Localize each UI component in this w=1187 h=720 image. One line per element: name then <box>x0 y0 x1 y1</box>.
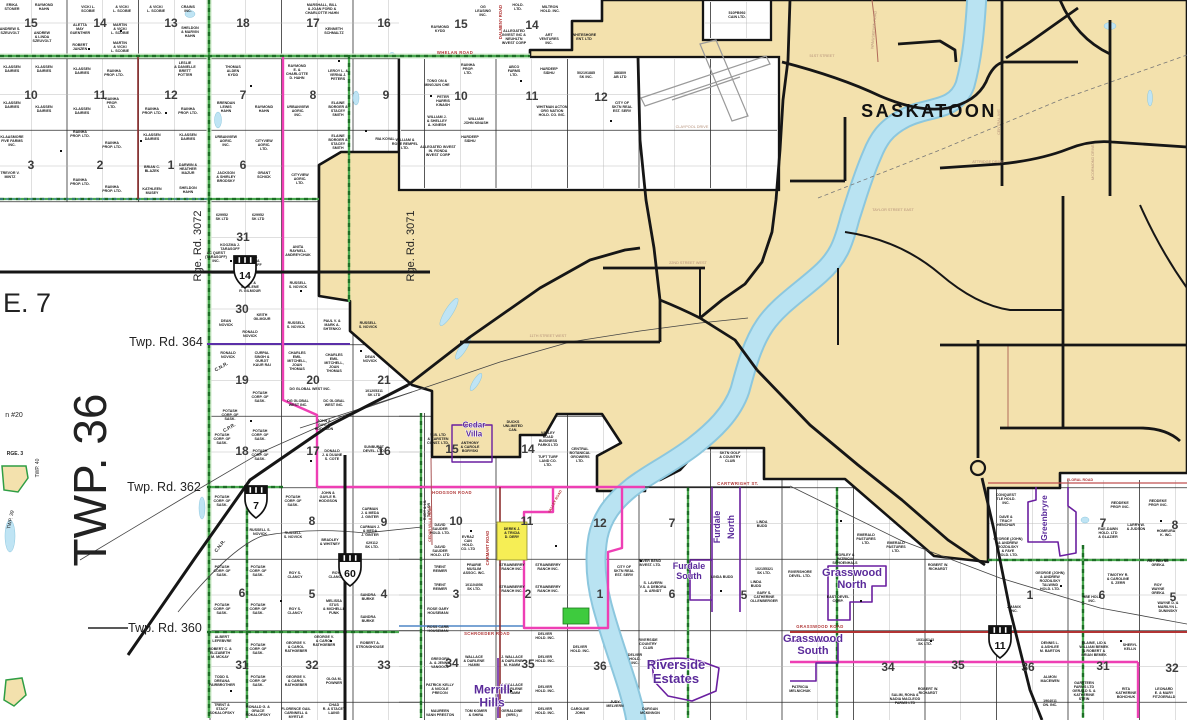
wheat-icon <box>250 487 252 493</box>
wheat-icon <box>255 487 257 493</box>
parcel-owner-label: DELVERHOLD. INC. <box>570 645 589 653</box>
shield-number: 14 <box>239 270 251 282</box>
section-number: 6 <box>240 158 247 172</box>
section-number: 15 <box>24 16 38 30</box>
parcel-owner-label: JACKSON& SHIRLEYBRODSKY <box>216 171 236 183</box>
building-dot <box>280 600 282 602</box>
section-number: 14 <box>521 442 535 456</box>
saskatoon-area-map: ERIKASTONERRAYMONDHAHNVICKI L.SCOBIE& VI… <box>0 0 1187 720</box>
lake <box>215 112 222 128</box>
section-number: 20 <box>306 373 320 387</box>
parcel-owner-label: ROBERT C. &ELIZABETHM. MCKAY <box>208 647 232 659</box>
building-dot <box>840 520 842 522</box>
wheat-icon <box>244 257 246 263</box>
parcel-owner-label: 502191885SK INC. <box>577 71 595 79</box>
parcel-owner-label: ELAINE, LID &WILLIAM BEMEK& ROBERT &BRIA… <box>1079 641 1109 657</box>
section-number: 10 <box>454 89 468 103</box>
lake <box>353 91 359 105</box>
parcel-owner-label: KLASSENDAIRIES <box>35 105 53 113</box>
section-number: 18 <box>236 16 250 30</box>
parcel-owner-label: KLASSENDAIRIES <box>35 65 53 73</box>
section-number: 7 <box>669 516 676 530</box>
section-number: 2 <box>97 158 104 172</box>
lake <box>1081 517 1089 523</box>
map-text-label: 22ND STREET WEST <box>669 261 707 265</box>
parcel-owner-label: VICKI L.SCOBIE <box>81 5 95 13</box>
section-number: 5 <box>309 587 316 601</box>
parcel-owner-label: KENNETHSCHMALTZ <box>324 27 344 35</box>
map-text-label: CENTRAL AVE <box>997 109 1001 135</box>
parcel-owner-label: REDDEKEPROP. INC. <box>1149 499 1168 507</box>
map-text-label: TWP. 40 <box>35 458 41 477</box>
map-text-label: Greenbryre <box>1039 495 1049 541</box>
map-text-label: RiversideEstates <box>647 657 706 686</box>
parcel-owner-label: STRAWBERRYRANCH INC. <box>499 563 525 571</box>
parcel-owner-label: CHARLESEMILMITCHELL,JOANTHOMAS <box>287 351 306 371</box>
section-number: 35 <box>951 658 965 672</box>
map-text-label: CARTWRIGHT ST. <box>717 481 758 486</box>
building-dot <box>140 140 142 142</box>
parcel-owner-label: 510PB992CAIN LTD. <box>728 11 746 19</box>
section-number: 34 <box>445 656 459 670</box>
section-number: 31 <box>236 230 250 244</box>
parcel-owner-label: 101104056SK LTD. <box>465 583 483 591</box>
parcel-owner-label: LINDABUDD <box>751 580 762 588</box>
lake <box>199 497 205 519</box>
parcel-owner-label: KLASSENDAIRIES <box>3 101 21 109</box>
parcel-owner-label: RUSSELLS. NOVICK <box>289 281 308 289</box>
parcel-owner-label: BRIAN C.BLAZEK <box>144 165 160 173</box>
building-dot <box>1060 585 1062 587</box>
section-number: 16 <box>377 444 391 458</box>
section-number: 1 <box>1027 588 1034 602</box>
rural-enclave-block <box>703 0 771 40</box>
map-text-label: WHELAN ROAD <box>437 50 473 55</box>
section-number: 31 <box>235 658 249 672</box>
wheat-icon <box>239 257 241 263</box>
section-number: 36 <box>1021 660 1035 674</box>
section-number: 6 <box>239 586 246 600</box>
section-number: 32 <box>305 658 319 672</box>
section-number: 7 <box>240 88 247 102</box>
parcel-owner-label: PAUL V. &MARK A.SHTENKO <box>323 319 341 331</box>
map-text-label: MerrillHills <box>474 683 510 710</box>
wheat-icon <box>999 627 1001 633</box>
section-number: 7 <box>1100 516 1107 530</box>
section-number: 21 <box>377 373 391 387</box>
map-text-label: Twp. Rd. 364 <box>129 335 203 349</box>
section-number: 5 <box>741 588 748 602</box>
section-number: 11 <box>94 88 107 102</box>
parcel-owner-label: CARMAN J.& MEDAJ. GINTER <box>360 525 380 537</box>
section-number: 9 <box>383 88 390 102</box>
section-number: 35 <box>521 657 535 671</box>
parcel-owner-label: ROY S.CLANCY <box>288 571 304 579</box>
parcel-owner-label: OLGA M.POWNER <box>326 677 343 685</box>
map-text-label: SCHROEDER ROAD <box>464 631 510 636</box>
section-number: 16 <box>377 16 391 30</box>
parcel-owner-label: CURPALSINGH &GURJITKAUR RAI <box>253 351 271 367</box>
parcel-owner-label: TONG ON &MINGJUN CHE <box>424 79 450 87</box>
parcel-owner-label: CARMANJ. & MEDAJ. GINTER <box>361 507 380 519</box>
map-text-label: CedarVilla <box>463 421 486 439</box>
section-number: 2 <box>525 587 532 601</box>
section-number: 15 <box>454 17 468 31</box>
parcel-owner-label: 386809AB LTD <box>614 71 627 79</box>
map-text-label: ATTRIDGE DRIVE <box>972 160 1004 164</box>
parcel-owner-label: PETERHARRISKINASH <box>436 95 450 107</box>
wheat-icon <box>1005 627 1007 633</box>
parcel-owner-label: KOOZMA J.TARASOFF <box>220 243 240 251</box>
section-number: 5 <box>1170 590 1177 604</box>
parcel-owner-label: RAINHAPROP. LTD. <box>142 107 161 115</box>
building-dot <box>365 130 367 132</box>
parcel-owner-label: 629112SK LTD. <box>365 541 379 549</box>
section-number: 6 <box>669 587 676 601</box>
parcel-owner-label: RAINHAPROP. LTD. <box>70 130 89 138</box>
parcel-owner-label: LEONARDE. & MARYFITZGERALD <box>1153 687 1176 699</box>
section-number: 11 <box>526 89 539 103</box>
parcel-owner-label: ROSS CARBHOUSEMAN <box>427 625 449 633</box>
section-number: 32 <box>1165 661 1179 675</box>
section-number: 4 <box>381 587 388 601</box>
parcel-owner-label: WILLIAM J.& SHELLEYA. KINESH <box>427 115 448 127</box>
section-number: 17 <box>306 16 320 30</box>
parcel-owner-label: MILTRONHOLD. INC. <box>540 5 559 13</box>
shield-number: 11 <box>994 640 1005 652</box>
parcel-owner-label: SANDRABURKE <box>360 593 376 601</box>
section-number: 10 <box>449 514 463 528</box>
parcel-owner-label: DELVERHOLD. INC. <box>535 685 554 693</box>
map-text-label: TAYLOR STREET EAST <box>872 208 914 212</box>
map-text-label: 51ST STREET <box>809 54 835 58</box>
parcel-owner-label: 101205311SK LTD <box>365 389 383 397</box>
wheat-icon <box>994 627 996 633</box>
building-dot <box>470 530 472 532</box>
building-dot <box>165 112 167 114</box>
parcel-owner-label: RAINHAPROP. LTD. <box>102 141 121 149</box>
map-text-label: RGE. 3 <box>7 451 24 457</box>
section-number: 15 <box>445 442 459 456</box>
parcel-owner-label: RAINHAPROP. LTD. <box>104 69 123 77</box>
parcel-owner-label: RIVER BENDINVEST. LTD. <box>639 559 662 567</box>
parcel-owner-label: KLASSENDAIRIES <box>3 65 21 73</box>
map-text-label: Twp. Rd. 360 <box>128 621 202 635</box>
parcel-owner-label: BRADLEY& WHITNEY <box>320 538 341 546</box>
parcel-owner-label: DENNIS L.& ASHLEEM. BARTON <box>1040 641 1061 653</box>
shield-number: 7 <box>253 500 259 512</box>
section-number: 11 <box>521 514 534 528</box>
parcel-owner-label: ANDREW S.SZEUVOLT <box>0 27 20 35</box>
parcel-owner-label: WHITMAN ACTONORG NATIONHOLD. CO. INC. <box>537 105 568 117</box>
parcel-owner-label: RUSSELLS. NOVICK <box>287 321 306 329</box>
parcel-owner-label: ROSE GARYHOUSEMAN <box>427 607 449 615</box>
parcel-owner-label: 629952SK LTD <box>216 213 229 221</box>
shield-number: 60 <box>344 568 356 580</box>
parcel-owner-label: 103146143SK LTD. <box>916 638 934 646</box>
building-dot <box>230 690 232 692</box>
map-text-label: MCORMOND DRIVE <box>1091 144 1095 180</box>
section-number: 17 <box>306 444 320 458</box>
wheat-icon <box>344 555 346 561</box>
parcel-owner-label: ALLEGATEDINVEST INC &NEUHLTNINVEST CORP <box>502 29 527 45</box>
building-dot <box>1160 520 1162 522</box>
map-text-label: DALMENY ROAD <box>498 5 503 39</box>
map-text-label: HODGSON ROAD <box>432 490 472 495</box>
parcel-owner-label: ROBERT W.RICHARDT <box>918 687 938 695</box>
building-dot <box>310 460 312 462</box>
section-number: 10 <box>24 88 38 102</box>
parcel-owner-label: PATRICIAMELNICHUK <box>789 685 811 693</box>
building-dot <box>860 600 862 602</box>
parcel-owner-label: STRAWBERRYRANCH INC. <box>535 563 561 571</box>
parcel-owner-label: DURGANMCKINNON <box>640 707 660 715</box>
wheat-icon <box>355 555 357 561</box>
parcel-owner-label: DEREK J.& TRICIAD. DERY <box>504 527 521 539</box>
map-text-label: CEDAR VILLA ROAD <box>428 506 432 542</box>
section-number: 31 <box>1096 659 1110 673</box>
parcel-owner-label: ANTHONY& CAROLEBORYSKI <box>461 441 480 453</box>
parcel-owner-label: RONALDNOVICK <box>220 351 236 359</box>
lake <box>1148 90 1153 106</box>
parcel-owner-label: DC GLOBALWEST INC. <box>323 399 345 407</box>
parcel-owner-label: DELVERHOLD. INC. <box>535 632 554 640</box>
parcel-owner-label: MARSHALL, BILL& JOAN FORD &CHARLOTTE HAH… <box>305 3 339 15</box>
parcel-owner-label: EVRAZCANHOLD.CO. LTD <box>461 535 476 551</box>
section-number: 18 <box>235 444 249 458</box>
section-number: 12 <box>164 88 178 102</box>
parcel-owner-label: RIA KOVAL <box>375 137 395 141</box>
parcel-owner-label: STRAWBERRYRANCH INC. <box>499 585 525 593</box>
map-text-label: FLORAL ROAD <box>1067 478 1093 482</box>
map-text-label: FurdaleSouth <box>673 561 706 581</box>
section-number: 12 <box>594 90 608 104</box>
building-dot <box>60 150 62 152</box>
building-dot <box>250 420 252 422</box>
parcel-owner-label: TRENTREIMER <box>433 583 447 591</box>
parcel-owner-label: DG GLOBAL WEST INC. <box>289 387 330 391</box>
map-text-label: CARMART ROAD <box>485 531 490 566</box>
building-dot <box>360 350 362 352</box>
building-dot <box>230 260 232 262</box>
parcel-owner-label: RAINHAPROP. LTD. <box>70 178 89 186</box>
parcel-owner-label: RAINHAPROP. LTD. <box>102 185 121 193</box>
wheat-icon <box>349 555 351 561</box>
section-number: 9 <box>381 515 388 529</box>
map-text-label: Rge. Rd. 3072 <box>192 211 204 282</box>
section-number: 14 <box>525 18 539 32</box>
section-number: 36 <box>593 659 607 673</box>
building-dot <box>338 60 340 62</box>
building-dot <box>88 48 90 50</box>
section-number: 1 <box>168 158 175 172</box>
map-text-label: 11TH STREET WEST <box>530 334 568 338</box>
map-text-label: Rge. Rd. 3071 <box>405 211 417 282</box>
parcel-owner-label: 629952SK LTD <box>252 213 265 221</box>
parcel-owner-label: KLASSENDAIRIES <box>143 133 161 141</box>
building-dot <box>250 85 252 87</box>
map-text-label: E. 7 <box>3 288 51 318</box>
section-number: 30 <box>235 302 249 316</box>
map-text-label: n #20 <box>5 412 23 419</box>
section-number: 19 <box>235 373 249 387</box>
parcel-owner-label: ROBERTJANZEN <box>72 43 88 51</box>
section-number: 3 <box>453 587 460 601</box>
map-text-label: North <box>726 515 736 539</box>
building-dot <box>1120 640 1122 642</box>
parcel-owner-label: KLASSENDAIRIES <box>73 107 91 115</box>
parcel-owner-label: KLASSENDAIRIES <box>179 133 197 141</box>
section-number: 33 <box>377 658 391 672</box>
parcel-owner-label: RONALDNOVICK <box>242 330 258 338</box>
section-number: 8 <box>310 88 317 102</box>
building-dot <box>555 545 557 547</box>
parcel-owner-label: RUSSELLS. NOVICK <box>359 321 378 329</box>
wheat-icon <box>261 487 263 493</box>
parcel-owner-label: DELVERHOLD. INC. <box>535 707 554 715</box>
wheat-icon <box>250 257 252 263</box>
parcel-owner-label: ROBERT W.RICHARDT <box>928 563 948 571</box>
map-text-label: GRASSWOOD ROAD <box>796 624 843 629</box>
parcel-owner-label: REDDEKEPROP. INC. <box>1111 501 1130 509</box>
parcel-owner-label: CHARLESEMILMITCHELL,JOANTHOMAS <box>324 353 343 373</box>
parcel-owner-label: SHERYLKELLN <box>1123 643 1138 651</box>
section-number: 8 <box>309 514 316 528</box>
building-dot <box>610 120 612 122</box>
parcel-owner-label: LARRY W.& JUDSON <box>1127 523 1146 531</box>
map-text-label: TWP. 36 <box>64 394 116 567</box>
building-dot <box>520 80 522 82</box>
parcel-owner-label: ROY S.CLANCY <box>288 607 304 615</box>
parcel-owner-label: RIVERSHOREDEVEL. LTD. <box>788 570 812 578</box>
parcel-owner-label: TRENTREIMER <box>433 565 447 573</box>
parcel-owner-label: KLASSENDAIRIES <box>73 67 91 75</box>
section-number: 34 <box>881 660 895 674</box>
map-text-label: Furdale <box>712 511 722 544</box>
parcel-owner-label: ERIKASTONER <box>5 3 20 11</box>
parcel-owner-label: ALBERTLEFEBVRE <box>212 635 232 643</box>
map-text-label: CLAYPOOL DRIVE <box>676 125 709 129</box>
section-number: 3 <box>28 158 35 172</box>
map-text-label: SASKATOON <box>861 101 997 121</box>
parcel-owner-label: RUSSELLS. NOVICK <box>284 531 303 539</box>
section-number: 14 <box>93 16 107 30</box>
parcel-owner-label: ANDREW& LINDASZEUVOLT <box>33 31 53 43</box>
parcel-owner-label: LINDABUDD <box>757 520 768 528</box>
parcel-owner-label: 102155321SK LTD. <box>755 567 773 575</box>
parcel-owner-label: RAINHAPROP. LTD. <box>178 107 197 115</box>
parcel-owner-label: LINDA BUDD <box>711 575 734 579</box>
parcel-owner-label: DELVERHOLD. INC. <box>535 655 554 663</box>
section-number: 12 <box>593 516 607 530</box>
parcel-owner-label: GRANTSCHICK <box>257 171 271 179</box>
section-number: 1 <box>597 587 604 601</box>
parcel-owner-label: DG GLOBALWEST INC. <box>287 399 309 407</box>
building-dot <box>300 290 302 292</box>
section-number: 8 <box>1172 518 1179 532</box>
building-dot <box>720 590 722 592</box>
building-dot <box>430 95 432 97</box>
section-number: 13 <box>164 16 178 30</box>
highlighted-parcel <box>563 608 589 624</box>
map-text-label: Twp. Rd. 362 <box>127 480 201 494</box>
parcel-owner-label: SANDRABURKE <box>360 615 376 623</box>
map-canvas: ERIKASTONERRAYMONDHAHNVICKI L.SCOBIE& VI… <box>0 0 1187 720</box>
parcel-owner-label: 1964011ON. INC. <box>1043 699 1058 707</box>
section-number: 6 <box>1099 588 1106 602</box>
parcel-owner-label: STRAWBERRYRANCH INC. <box>535 585 561 593</box>
